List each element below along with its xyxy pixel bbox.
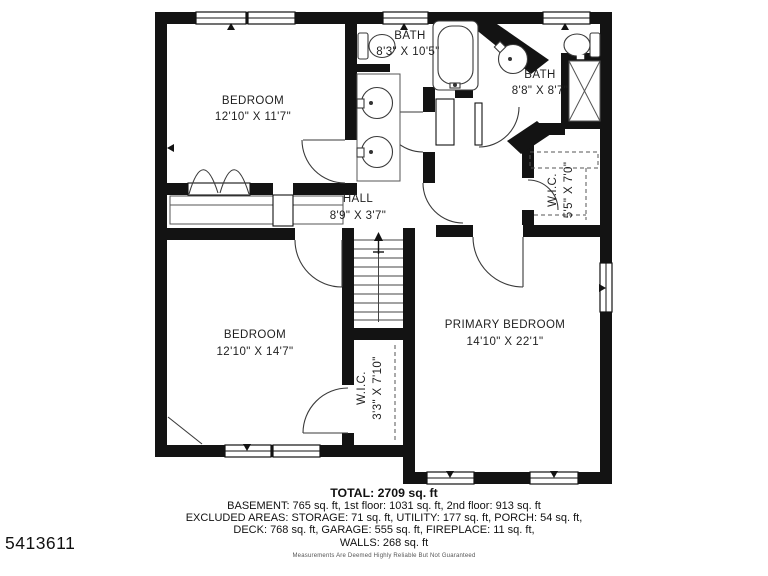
- wall: [561, 121, 600, 129]
- sink-drain: [369, 101, 373, 105]
- area-summary: TOTAL: 2709 sq. ft BASEMENT: 765 sq. ft,…: [0, 487, 768, 559]
- wall: [167, 183, 188, 195]
- wall: [250, 183, 273, 195]
- room-dims-hall: 8'9" X 3'7": [330, 210, 387, 222]
- door-arc: [295, 240, 342, 287]
- door-arc: [423, 183, 463, 223]
- door-leaf: [273, 195, 293, 226]
- closet-shelf: [170, 205, 343, 224]
- floors-area-text: BASEMENT: 765 sq. ft, 1st floor: 1031 sq…: [0, 500, 768, 512]
- bathtub-icon: [438, 26, 473, 84]
- disclaimer-text: Measurements Are Deemed Highly Reliable …: [0, 553, 768, 559]
- door-arc: [473, 237, 523, 287]
- wall: [342, 228, 354, 385]
- room-dims-bath-1: 8'3" X 10'5": [376, 46, 439, 58]
- room-dims-primary-bedroom: 14'10" X 22'1": [467, 336, 544, 348]
- room-dims-bedroom-1: 12'10" X 11'7": [215, 111, 291, 123]
- room-label-wic-1: W.I.C.: [547, 173, 559, 207]
- plan-id: 5413611: [5, 533, 75, 554]
- stairs: [354, 232, 403, 322]
- bathtub-drain: [453, 83, 457, 87]
- door-arc: [303, 388, 348, 433]
- shower-head-icon: [577, 55, 584, 59]
- stair-arrow-head: [374, 232, 383, 241]
- sink-icon: [362, 137, 393, 168]
- room-label-bedroom-1: BEDROOM: [222, 95, 284, 107]
- walls-area-text: WALLS: 268 sq. ft: [0, 537, 768, 549]
- wall: [522, 210, 534, 225]
- door-opening: [423, 112, 435, 152]
- sink-tap: [357, 148, 364, 157]
- door-arc: [302, 140, 345, 183]
- total-area-text: TOTAL: 2709 sq. ft: [0, 487, 768, 500]
- door-leaf: [475, 103, 482, 145]
- wall: [155, 228, 295, 240]
- wall: [403, 228, 415, 445]
- floor-plan-page: BEDROOM 12'10" X 11'7" BATH 8'3" X 10'5"…: [0, 0, 768, 576]
- toilet-icon: [590, 33, 600, 57]
- sink-tap: [357, 99, 364, 108]
- room-dims-wic-1: 5'5" X 7'0": [563, 162, 575, 219]
- corner-detail: [168, 417, 202, 444]
- bifold-sill: [188, 183, 250, 195]
- excluded-areas-text: EXCLUDED AREAS: STORAGE: 71 sq. ft, UTIL…: [0, 512, 768, 524]
- room-dims-bath-2: 8'8" X 8'7": [512, 85, 569, 97]
- room-label-primary-bedroom: PRIMARY BEDROOM: [445, 319, 566, 331]
- wall: [345, 24, 357, 140]
- room-label-bath-2: BATH: [524, 69, 555, 81]
- wall: [436, 225, 473, 237]
- sink-icon: [362, 88, 393, 119]
- toilet-icon: [358, 33, 368, 59]
- wall: [345, 64, 390, 72]
- dimension-arrow: [167, 144, 174, 152]
- door-leaf: [436, 99, 454, 145]
- door-opening: [522, 178, 534, 210]
- sink-drain: [508, 57, 512, 61]
- wall: [354, 328, 403, 340]
- room-label-hall: HALL: [343, 193, 374, 205]
- wall: [600, 12, 612, 484]
- closet-shelf: [170, 196, 343, 205]
- door-opening: [345, 140, 357, 183]
- toilet-icon: [564, 34, 590, 56]
- wall: [523, 225, 600, 237]
- room-label-wic-2: W.I.C.: [356, 371, 368, 405]
- room-dims-bedroom-2: 12'10" X 14'7": [217, 346, 294, 358]
- room-label-bedroom-2: BEDROOM: [224, 329, 286, 341]
- sink-drain: [369, 150, 373, 154]
- room-label-bath-1: BATH: [394, 30, 425, 42]
- wall: [342, 433, 354, 445]
- door-opening: [342, 385, 354, 433]
- room-dims-wic-2: 3'3" X 7'10": [372, 356, 384, 419]
- excluded-areas-text2: DECK: 768 sq. ft, GARAGE: 555 sq. ft, FI…: [0, 524, 768, 536]
